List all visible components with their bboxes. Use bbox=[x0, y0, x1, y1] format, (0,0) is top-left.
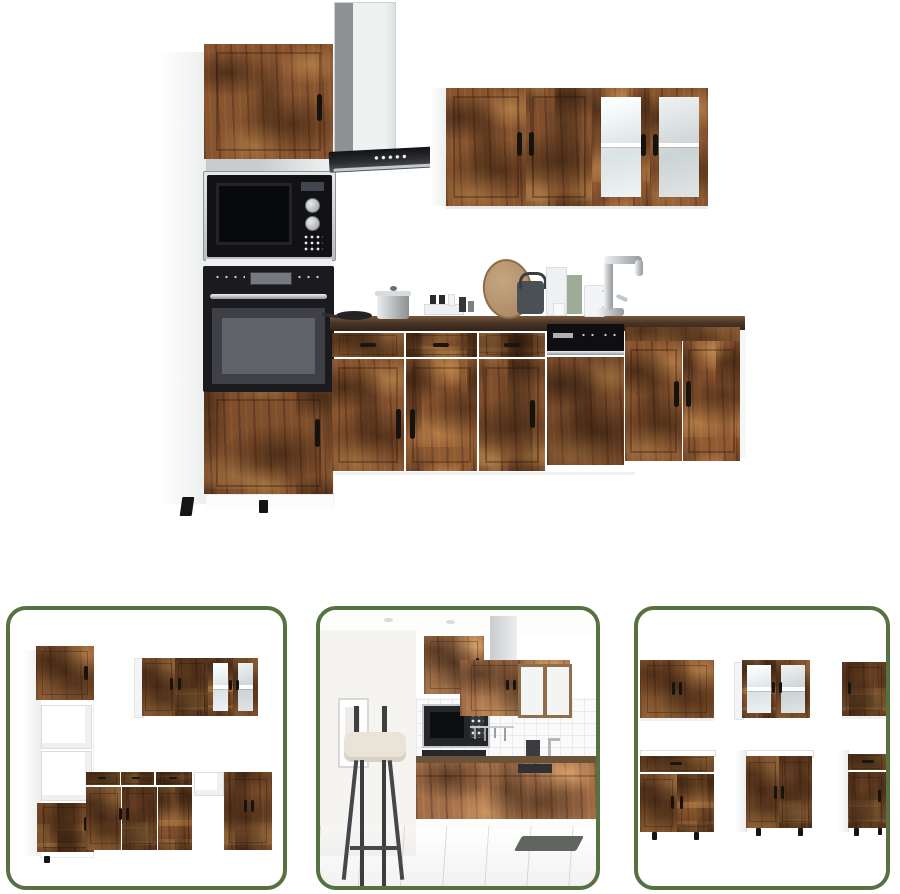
mini-drawer-handle bbox=[98, 777, 106, 779]
unit-foot bbox=[652, 832, 657, 840]
scene-coffee-machine bbox=[526, 740, 540, 756]
dishwasher-control-panel bbox=[547, 324, 624, 355]
oven-window-inner bbox=[222, 318, 315, 374]
dishwasher-front-panel bbox=[547, 357, 624, 465]
floor-mat bbox=[514, 836, 584, 851]
cup bbox=[553, 303, 565, 316]
door-handle bbox=[686, 381, 691, 407]
unit-drawer-handle bbox=[670, 762, 682, 765]
scene-base-cabinets bbox=[416, 763, 600, 819]
thumbnail-lifestyle[interactable] bbox=[316, 606, 600, 890]
drawer-handle bbox=[433, 343, 449, 347]
hanging-utensil bbox=[494, 728, 496, 738]
tall-cabinet-plinth bbox=[206, 494, 332, 508]
mini-base-door bbox=[86, 787, 121, 850]
unit-handle bbox=[680, 796, 683, 809]
thumbnail-arrangement[interactable] bbox=[6, 606, 287, 890]
utensil-rail bbox=[470, 726, 514, 728]
glass-pane bbox=[781, 665, 805, 713]
microwave-display bbox=[301, 182, 324, 191]
wall-cabinet-door bbox=[526, 88, 592, 206]
door-handle bbox=[315, 419, 320, 447]
jar bbox=[468, 301, 474, 312]
unit-handle bbox=[779, 682, 782, 693]
cabinet-foot bbox=[180, 497, 195, 516]
door-handle bbox=[317, 94, 322, 121]
unit-foot bbox=[694, 832, 699, 840]
mini-handle bbox=[119, 808, 122, 820]
mini-drawer-handle bbox=[132, 777, 140, 779]
tall-cabinet-shelf-band bbox=[206, 159, 332, 171]
dishwasher-trim bbox=[547, 351, 624, 355]
door-handle bbox=[517, 132, 522, 156]
unit-foot bbox=[798, 828, 803, 836]
microwave-window bbox=[216, 183, 292, 245]
base-run-shadow bbox=[335, 472, 635, 475]
unit-foot bbox=[854, 828, 859, 836]
scene-dishwasher-panel bbox=[518, 764, 552, 773]
door-handle bbox=[641, 134, 646, 156]
scene-counter bbox=[416, 756, 600, 763]
mini-base-door bbox=[158, 787, 192, 850]
oven-display bbox=[250, 272, 292, 285]
mini-handle bbox=[244, 800, 247, 812]
microwave-knob bbox=[305, 216, 320, 231]
mini-open-compartment bbox=[41, 751, 92, 801]
door-handle bbox=[530, 400, 535, 428]
unit-foot bbox=[878, 828, 882, 835]
mini-foot bbox=[44, 856, 50, 863]
unit-wall-cabinet-2door bbox=[640, 660, 714, 718]
base-cabinet-door bbox=[479, 359, 545, 471]
tall-cabinet-top-door bbox=[204, 44, 333, 159]
glass-pane bbox=[747, 665, 771, 713]
kettle-handle bbox=[519, 272, 547, 289]
mini-handle bbox=[170, 678, 173, 690]
mini-handle bbox=[251, 800, 254, 812]
mini-right-cabinet bbox=[224, 772, 272, 850]
ceiling-spotlight bbox=[384, 618, 393, 622]
base-cabinet-door bbox=[332, 359, 404, 471]
scene-faucet-arm bbox=[548, 738, 560, 741]
microwave-knob bbox=[305, 198, 320, 213]
product-gallery bbox=[0, 0, 900, 894]
frying-pan bbox=[336, 311, 372, 320]
door-handle bbox=[674, 381, 679, 407]
unit-handle bbox=[679, 682, 682, 695]
oven-handle bbox=[210, 294, 327, 299]
faucet-spout-end bbox=[635, 260, 643, 276]
unit-bottom-edge bbox=[640, 718, 714, 721]
scene-glass-pane bbox=[518, 664, 546, 718]
dishwasher-buttons bbox=[601, 332, 617, 339]
hanging-utensil bbox=[484, 728, 486, 741]
tall-cabinet-bottom-door bbox=[204, 392, 333, 494]
oven bbox=[203, 266, 334, 392]
stool-seat bbox=[344, 732, 406, 762]
spice-jar bbox=[439, 295, 445, 304]
door-handle bbox=[653, 134, 658, 156]
oven-controls-left bbox=[213, 274, 245, 282]
drawer-handle bbox=[504, 343, 520, 347]
unit-handle bbox=[671, 796, 674, 809]
wall-cabinet-door bbox=[446, 88, 526, 206]
unit-glass-door bbox=[742, 660, 776, 718]
spice-jar bbox=[448, 294, 455, 306]
pot-lid bbox=[375, 291, 411, 296]
spice-tray bbox=[424, 304, 464, 315]
pot-lid-knob bbox=[390, 286, 397, 291]
scene-faucet bbox=[548, 740, 551, 756]
ceiling-spotlight bbox=[446, 620, 455, 624]
dishwasher-display bbox=[553, 333, 573, 338]
unit-bottom-edge bbox=[842, 716, 886, 719]
dishwasher-buttons bbox=[579, 332, 597, 339]
scene-handle bbox=[506, 680, 509, 690]
hanging-utensil bbox=[474, 728, 476, 739]
microwave bbox=[203, 171, 336, 261]
unit-foot bbox=[756, 828, 761, 836]
mini-handle bbox=[229, 680, 232, 690]
sink-cabinet-door bbox=[683, 341, 740, 461]
stool-leg bbox=[360, 760, 364, 886]
faucet-lever bbox=[616, 294, 629, 303]
door-handle bbox=[410, 409, 415, 439]
glass-pane bbox=[238, 663, 253, 711]
stool-leg bbox=[382, 760, 386, 886]
unit-handle bbox=[878, 790, 881, 802]
mini-drawer-handle bbox=[169, 777, 177, 779]
cooker-hood-canopy bbox=[329, 146, 442, 173]
glass-pane bbox=[213, 663, 228, 711]
unit-handle bbox=[672, 682, 675, 695]
mini-open-slot bbox=[194, 772, 224, 796]
unit-handle bbox=[781, 786, 784, 799]
unit-handle bbox=[774, 786, 777, 799]
mini-open-compartment bbox=[41, 705, 92, 749]
main-product-image[interactable] bbox=[0, 0, 900, 580]
wall-cabinet-bottom-shadow bbox=[446, 206, 708, 209]
cooker-hood-chimney bbox=[334, 2, 396, 153]
mini-handle bbox=[178, 678, 181, 690]
oven-controls-right bbox=[295, 274, 323, 282]
wall-cabinet-glass-door bbox=[650, 88, 708, 206]
door-handle bbox=[396, 409, 401, 439]
drawer-handle bbox=[360, 343, 376, 347]
scene-drawer-line bbox=[416, 775, 600, 777]
thumbnail-individual-units[interactable] bbox=[634, 606, 890, 890]
jar bbox=[459, 297, 466, 312]
cabinet-foot bbox=[259, 500, 268, 513]
door-handle bbox=[529, 132, 534, 156]
unit-handle bbox=[848, 682, 851, 694]
mini-handle bbox=[84, 666, 88, 680]
scene-handle bbox=[513, 680, 516, 690]
scene-glass-pane bbox=[544, 664, 572, 718]
tall-cabinet-side-panel bbox=[160, 52, 207, 504]
wall-cabinet-side-panel bbox=[430, 88, 447, 206]
microwave-keypad bbox=[303, 234, 323, 252]
cooker-hood-buttons bbox=[373, 153, 407, 162]
faucet-stem bbox=[604, 262, 613, 310]
sink-cabinet-side-edge bbox=[740, 330, 746, 458]
glass-pane bbox=[601, 97, 641, 197]
canister bbox=[567, 275, 582, 314]
oven-window bbox=[212, 308, 325, 384]
mini-handle bbox=[236, 680, 239, 690]
unit-drawer-handle bbox=[862, 760, 874, 763]
mini-handle bbox=[126, 808, 129, 820]
glass-pane bbox=[659, 97, 699, 197]
scene-microwave-window bbox=[430, 712, 464, 738]
cooking-pot bbox=[377, 294, 409, 319]
base-cabinet-door bbox=[406, 359, 477, 471]
sink-cabinet-top-rail bbox=[625, 327, 740, 341]
hanging-utensil bbox=[504, 728, 506, 741]
stool-footring bbox=[350, 846, 398, 850]
unit-handle bbox=[772, 682, 775, 693]
spice-jar bbox=[430, 295, 436, 304]
